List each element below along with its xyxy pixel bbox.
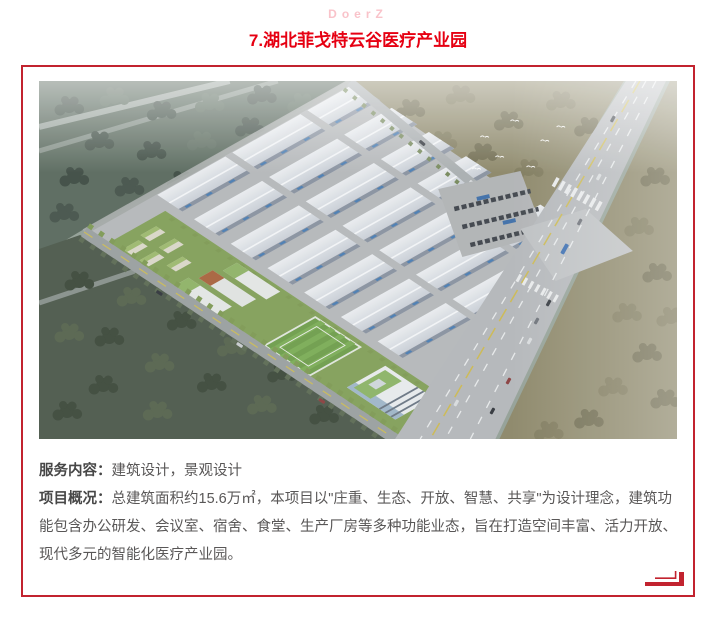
overview-label: 项目概况：: [39, 491, 112, 507]
service-line: 服务内容：建筑设计，景观设计: [39, 457, 677, 485]
aerial-rendering-image: [39, 81, 677, 439]
project-description: 服务内容：建筑设计，景观设计 项目概况：总建筑面积约15.6万㎡，本项目以"庄重…: [39, 457, 677, 569]
corner-bracket-icon: [643, 570, 691, 588]
overview-line: 项目概况：总建筑面积约15.6万㎡，本项目以"庄重、生态、开放、智慧、共享"为设…: [39, 485, 677, 569]
brand-watermark: DoerZ: [0, 0, 716, 21]
service-text: 建筑设计，景观设计: [112, 463, 243, 479]
service-label: 服务内容：: [39, 463, 112, 479]
project-card: 服务内容：建筑设计，景观设计 项目概况：总建筑面积约15.6万㎡，本项目以"庄重…: [21, 65, 695, 597]
overview-text: 总建筑面积约15.6万㎡，本项目以"庄重、生态、开放、智慧、共享"为设计理念，建…: [39, 491, 677, 563]
page-title: 7.湖北菲戈特云谷医疗产业园: [0, 30, 716, 51]
haze-overlay: [39, 81, 677, 439]
